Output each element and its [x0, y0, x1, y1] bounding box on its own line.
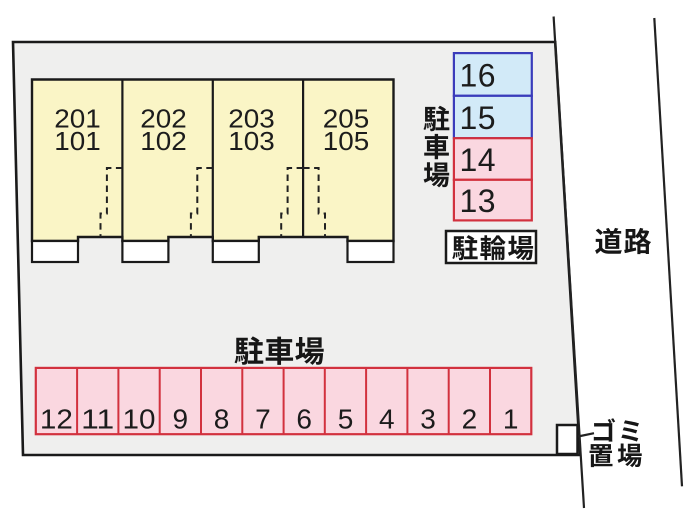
- svg-text:105: 105: [323, 126, 370, 156]
- svg-text:14: 14: [460, 142, 497, 178]
- svg-text:9: 9: [173, 403, 189, 434]
- svg-text:7: 7: [255, 403, 271, 434]
- svg-text:13: 13: [460, 183, 497, 219]
- svg-text:16: 16: [460, 58, 497, 94]
- svg-text:4: 4: [379, 403, 395, 434]
- svg-text:10: 10: [123, 403, 156, 434]
- svg-text:103: 103: [228, 126, 275, 156]
- svg-text:2: 2: [462, 403, 478, 434]
- svg-text:5: 5: [338, 403, 354, 434]
- svg-text:101: 101: [54, 126, 101, 156]
- svg-text:6: 6: [296, 403, 312, 434]
- svg-text:102: 102: [140, 126, 187, 156]
- svg-text:15: 15: [460, 100, 497, 136]
- svg-text:3: 3: [420, 403, 436, 434]
- svg-text:8: 8: [214, 403, 230, 434]
- svg-text:11: 11: [81, 403, 114, 434]
- svg-text:1: 1: [503, 403, 519, 434]
- svg-text:12: 12: [40, 403, 73, 434]
